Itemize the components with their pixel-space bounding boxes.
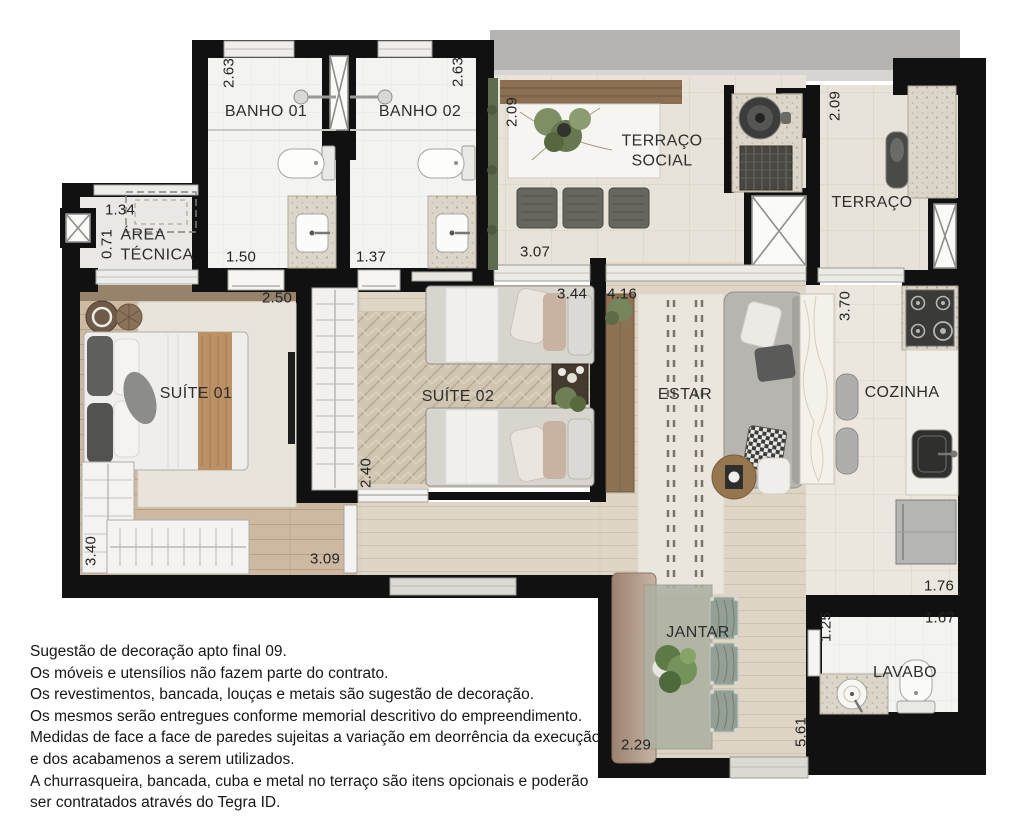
tv-console bbox=[605, 294, 634, 492]
pillow bbox=[568, 419, 592, 479]
disclaimer-line: Os mesmos serão entregues conforme memor… bbox=[30, 706, 630, 728]
door-icon bbox=[344, 505, 357, 573]
window-icon bbox=[730, 757, 808, 778]
floor-plan: BANHO 01 2.63 1.50 BANHO 02 2.63 1.37 ÁR… bbox=[0, 0, 1024, 828]
rug bbox=[638, 294, 724, 594]
pillow bbox=[87, 403, 113, 463]
window-icon bbox=[412, 272, 472, 281]
blanket bbox=[198, 332, 232, 470]
duvet bbox=[446, 288, 498, 362]
stove-icon bbox=[902, 286, 958, 350]
suite02-furniture bbox=[312, 286, 594, 490]
pillow bbox=[87, 336, 113, 396]
grill-rack-icon bbox=[740, 146, 792, 190]
bed-single bbox=[426, 286, 594, 364]
pillow bbox=[543, 421, 566, 479]
stool bbox=[836, 428, 858, 474]
terrace-counter bbox=[908, 86, 956, 198]
shaft-icon bbox=[752, 196, 806, 266]
wardrobe bbox=[312, 288, 358, 490]
coffee-table bbox=[712, 455, 756, 499]
dining-chair bbox=[710, 643, 738, 685]
terrace-chair bbox=[517, 188, 557, 228]
window-icon bbox=[94, 185, 198, 195]
door-icon bbox=[228, 270, 284, 290]
door-icon bbox=[808, 630, 820, 676]
disclaimer-line: Sugestão de decoração apto final 09. bbox=[30, 641, 630, 663]
kitchen-sink-icon bbox=[912, 430, 958, 478]
disclaimer-line: ser contratados através do Tegra ID. bbox=[30, 792, 630, 814]
door-icon bbox=[358, 270, 400, 290]
fridge-icon bbox=[896, 500, 956, 564]
island-counter bbox=[800, 294, 834, 484]
pillow bbox=[758, 458, 790, 494]
sink-icon bbox=[288, 196, 336, 268]
pillow bbox=[543, 293, 566, 351]
window-icon bbox=[494, 265, 590, 281]
shaft-icon bbox=[66, 214, 90, 242]
nightstand bbox=[552, 364, 588, 412]
pouf-icon bbox=[86, 301, 118, 333]
window-icon bbox=[224, 41, 294, 57]
sink-icon bbox=[820, 674, 888, 714]
dining-chair bbox=[710, 597, 738, 639]
deck-strip bbox=[500, 80, 682, 104]
disclaimer-line: Medidas de face a face de paredes sujeit… bbox=[30, 727, 630, 749]
disclaimer-text: Sugestão de decoração apto final 09. Os … bbox=[30, 641, 630, 814]
toilet-icon bbox=[418, 146, 475, 180]
door-icon bbox=[358, 489, 428, 502]
disclaimer-line: Os móveis e utensílios não fazem parte d… bbox=[30, 663, 630, 685]
disclaimer-line: A churrasqueira, bancada, cuba e metal n… bbox=[30, 771, 630, 793]
sliding-door-icon bbox=[606, 265, 806, 281]
terrace-rail-band bbox=[490, 30, 960, 70]
area-tecnica-floor bbox=[80, 197, 208, 270]
shaft-icon bbox=[934, 204, 956, 268]
dining-chair bbox=[710, 690, 738, 732]
tv-icon bbox=[288, 352, 295, 444]
window-icon bbox=[96, 270, 198, 284]
sink-icon bbox=[428, 196, 476, 268]
disclaimer-line: e dos acabamenos a serem utilizados. bbox=[30, 749, 630, 771]
terrace-chair bbox=[609, 188, 649, 228]
shaft-icon bbox=[330, 56, 348, 130]
terrace-chair bbox=[563, 188, 603, 228]
pouf-icon bbox=[116, 304, 142, 330]
disclaimer-line: Os revestimentos, bancada, louças e meta… bbox=[30, 684, 630, 706]
toilet-icon bbox=[278, 146, 335, 180]
window-icon bbox=[390, 578, 516, 595]
corridor-floor bbox=[357, 502, 606, 575]
door-icon bbox=[818, 268, 904, 282]
bed-single bbox=[426, 408, 594, 486]
duvet bbox=[446, 410, 498, 484]
toilet-icon bbox=[897, 660, 935, 713]
pillow bbox=[754, 344, 796, 383]
window-icon bbox=[378, 41, 432, 57]
stool bbox=[836, 374, 858, 420]
pillow bbox=[568, 295, 592, 355]
bed-double bbox=[84, 332, 248, 470]
